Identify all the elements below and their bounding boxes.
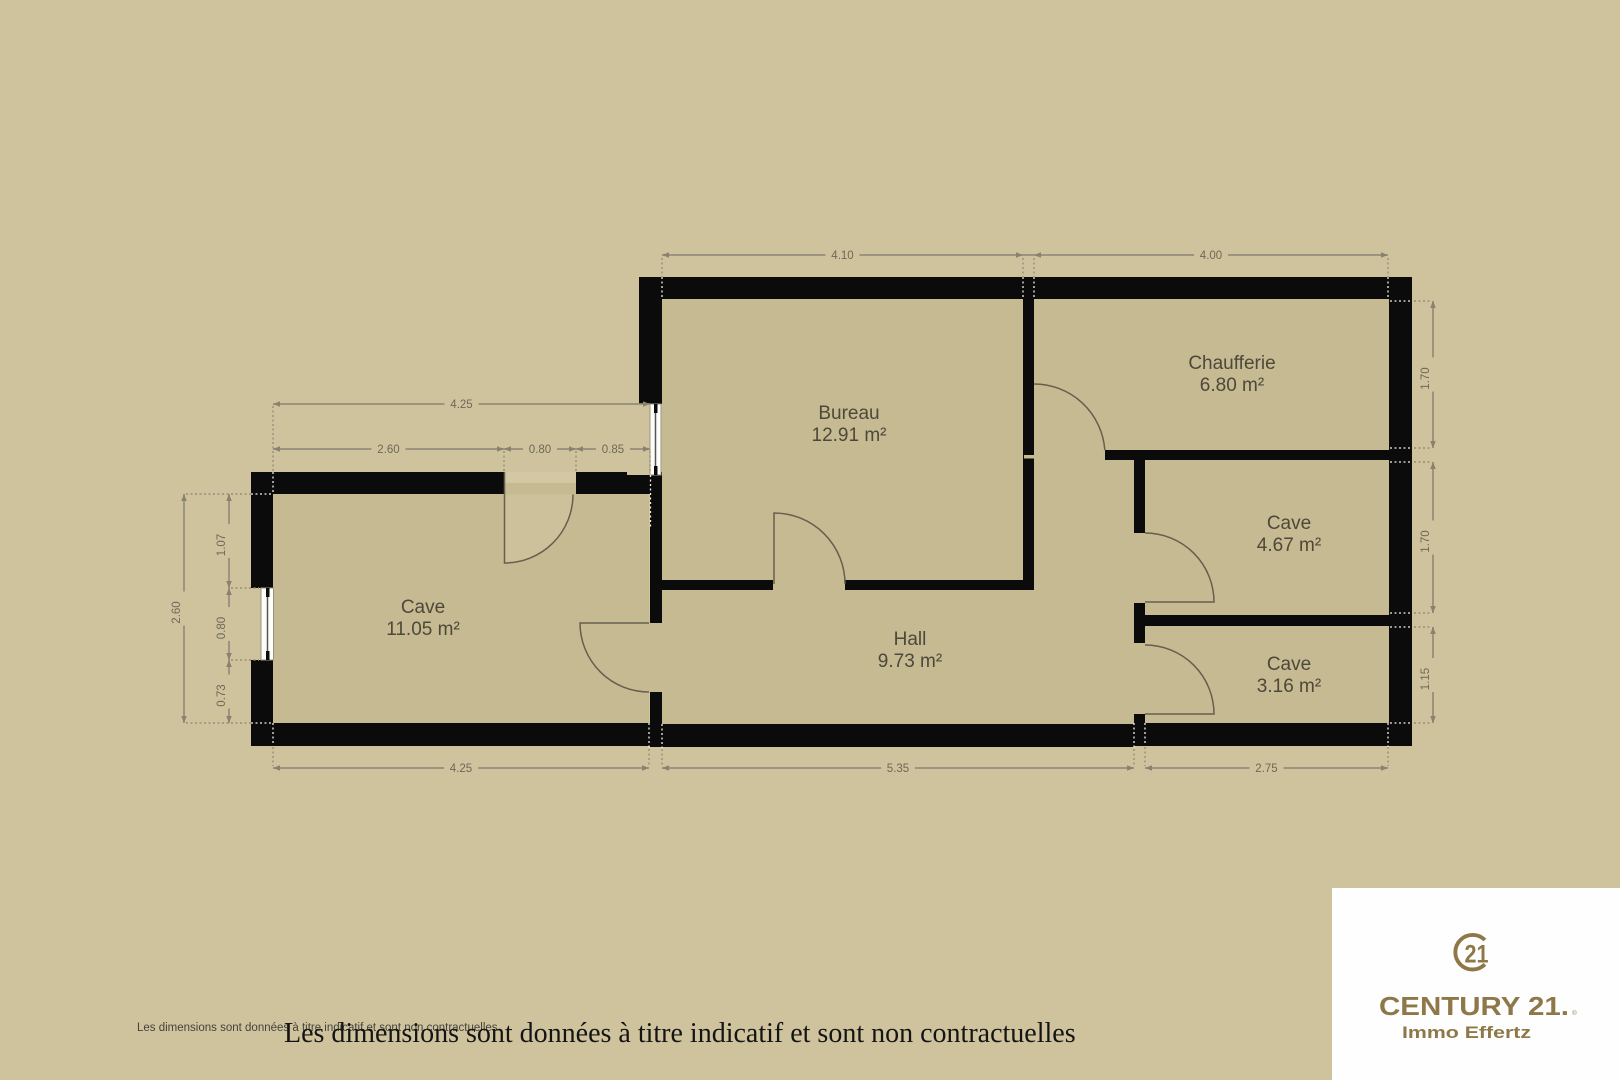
svg-text:Hall: Hall xyxy=(894,629,927,650)
svg-text:21: 21 xyxy=(1465,941,1489,969)
svg-text:12.91 m²: 12.91 m² xyxy=(812,425,887,446)
svg-text:Les dimensions sont données à: Les dimensions sont données à titre indi… xyxy=(284,1018,1076,1049)
svg-text:1.70: 1.70 xyxy=(1420,530,1432,552)
svg-text:Chaufferie: Chaufferie xyxy=(1188,353,1275,374)
svg-text:Cave: Cave xyxy=(1267,513,1311,534)
svg-text:2.60: 2.60 xyxy=(377,444,399,456)
svg-text:Bureau: Bureau xyxy=(818,403,879,424)
svg-text:0.80: 0.80 xyxy=(216,617,228,639)
svg-text:1.15: 1.15 xyxy=(1420,668,1432,690)
svg-text:4.25: 4.25 xyxy=(450,399,472,411)
svg-text:0.80: 0.80 xyxy=(529,444,551,456)
svg-text:CENTURY 21.: CENTURY 21. xyxy=(1379,991,1569,1021)
svg-text:2.60: 2.60 xyxy=(171,601,183,623)
svg-text:4.67 m²: 4.67 m² xyxy=(1257,535,1321,556)
svg-text:4.00: 4.00 xyxy=(1200,250,1222,262)
svg-text:4.10: 4.10 xyxy=(831,250,853,262)
svg-text:6.80 m²: 6.80 m² xyxy=(1200,375,1264,396)
svg-text:3.16 m²: 3.16 m² xyxy=(1257,676,1321,697)
svg-text:2.75: 2.75 xyxy=(1255,763,1277,775)
svg-text:0.85: 0.85 xyxy=(602,444,624,456)
svg-text:9.73 m²: 9.73 m² xyxy=(878,651,942,672)
svg-text:4.25: 4.25 xyxy=(450,763,472,775)
svg-text:5.35: 5.35 xyxy=(887,763,909,775)
svg-text:Immo Effertz: Immo Effertz xyxy=(1402,1023,1531,1042)
svg-text:®: ® xyxy=(1572,1009,1577,1017)
svg-text:0.73: 0.73 xyxy=(216,684,228,706)
svg-text:1.70: 1.70 xyxy=(1420,367,1432,389)
svg-text:11.05 m²: 11.05 m² xyxy=(386,619,460,640)
svg-text:1.07: 1.07 xyxy=(216,534,228,556)
svg-text:Cave: Cave xyxy=(401,597,445,618)
svg-text:Cave: Cave xyxy=(1267,654,1311,675)
